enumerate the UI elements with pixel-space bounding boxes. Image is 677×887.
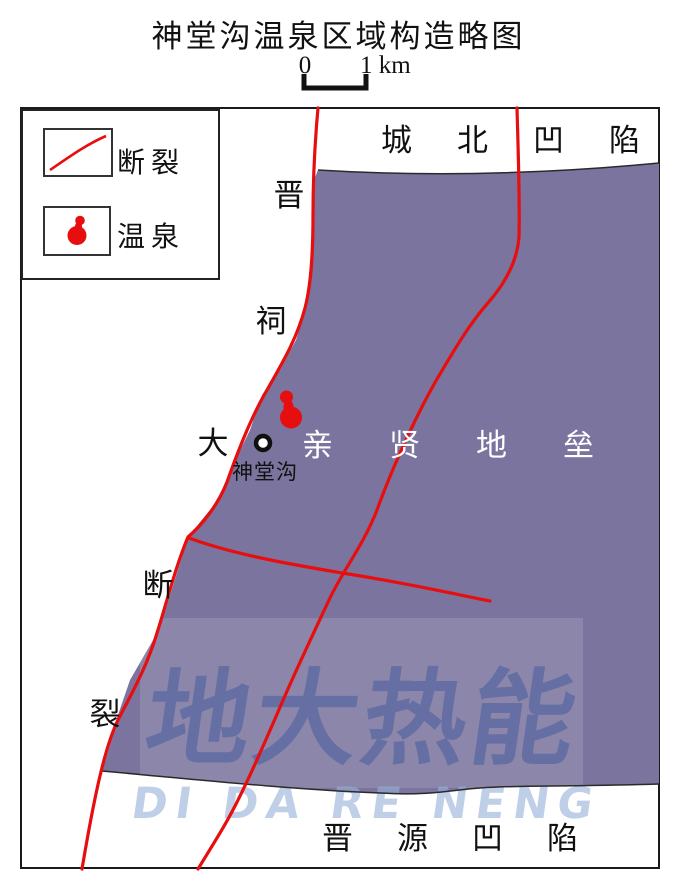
legend-fault-label: 断裂 bbox=[117, 141, 185, 181]
hot-spring-icon bbox=[45, 208, 109, 254]
scale-zero-label: 0 bbox=[294, 52, 316, 80]
legend: 断裂 温泉 bbox=[21, 109, 220, 280]
legend-spring-label: 温泉 bbox=[117, 215, 185, 255]
region-label-qinxian: 亲 贤 地 垒 bbox=[302, 429, 594, 462]
fault-name-char-da: 大 bbox=[196, 427, 230, 461]
fault-name-char-duan: 断 bbox=[141, 569, 175, 603]
fault-name-char-ci: 祠 bbox=[254, 305, 288, 339]
fault-line-icon bbox=[45, 130, 111, 175]
region-label-jinyuan: 晋 源 凹 陷 bbox=[322, 822, 578, 855]
legend-fault-sample-box bbox=[43, 128, 113, 177]
scale-km-label: 1 km bbox=[360, 52, 411, 80]
region-label-chengbei: 城 北 凹 陷 bbox=[381, 124, 640, 157]
watermark-cn: 地大热能 bbox=[139, 658, 588, 779]
spring-point-label: 神堂沟 bbox=[230, 456, 300, 486]
spring-location-marker bbox=[256, 436, 270, 450]
fault-name-char-lie: 裂 bbox=[88, 698, 122, 732]
legend-spring-sample-box bbox=[43, 206, 111, 256]
fault-name-char-jin: 晋 bbox=[272, 179, 306, 213]
geological-sketch-map: 地大热能 DI DA RE NENG 神堂沟温泉区域构造略图 0 1 km 城 … bbox=[0, 0, 677, 887]
map-title: 神堂沟温泉区域构造略图 bbox=[0, 11, 677, 56]
